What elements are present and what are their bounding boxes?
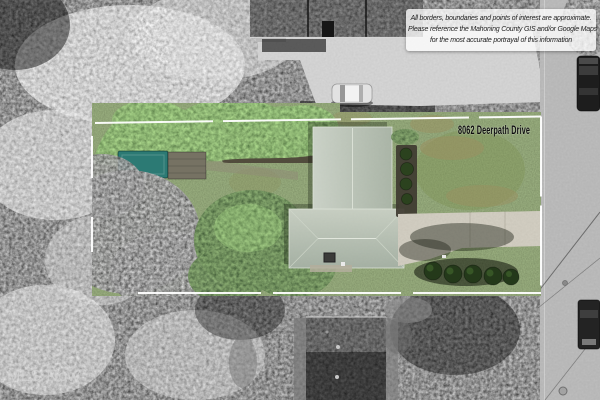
disclaimer-line: for the most accurate portrayal of this …	[408, 36, 594, 47]
front-walk	[310, 265, 352, 272]
chimney	[322, 21, 334, 37]
disclaimer-box: All borders, boundaries and points of in…	[406, 9, 596, 51]
parked-truck-bottom	[578, 300, 600, 349]
mls-watermark: MLS Now	[7, 368, 80, 386]
gray-deck	[168, 152, 206, 179]
manhole	[559, 387, 567, 395]
parked-truck-top	[577, 56, 600, 111]
aerial-photo-scene	[0, 0, 600, 400]
manhole	[563, 281, 568, 286]
disclaimer-line: All borders, boundaries and points of in…	[408, 14, 594, 25]
aerial-property-photo: All borders, boundaries and points of in…	[0, 0, 600, 400]
property-address-label: 8062 Deerpath Drive	[458, 125, 530, 137]
chimney	[324, 253, 335, 262]
street	[538, 0, 600, 400]
disclaimer-line: Please reference the Mahoning County GIS…	[408, 25, 594, 36]
